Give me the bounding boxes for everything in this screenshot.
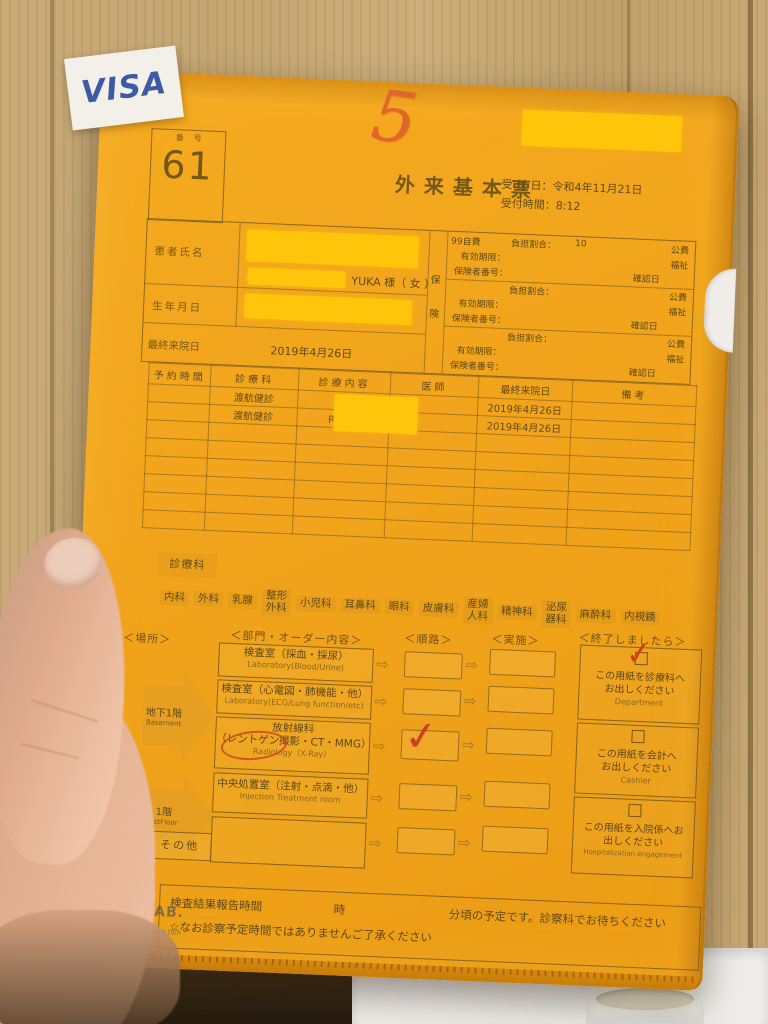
flow-arrow-icon: ⇨ [460,788,473,807]
flow-header-done: ＜実施＞ [491,631,540,649]
insurer-label: 保険者番号： [452,311,507,326]
department-chip: 内視鏡 [620,609,660,626]
palm-shadow [0,910,180,1024]
validity-label: 有効期限： [460,249,506,264]
department-chip: 小児科 [296,595,336,612]
patient-name-text: YUKA 様（ 女 ） [351,273,435,292]
flow-arrow-icon: ⇨ [464,692,477,711]
welfare: 福祉 [666,352,685,366]
welfare: 福祉 [668,305,687,319]
hand [0,520,190,1024]
burden-label: 負担割合： [511,236,557,251]
reception-date: 令和4年11月21日 [552,180,642,197]
red-checkmark: ✓ [624,636,652,673]
reception-date-label: 受 付 日： [501,178,552,193]
done-box [483,781,550,810]
department-chip: 精神科 [497,604,537,621]
confirm-date: 確認日 [631,318,659,332]
footer-rest: 分頃の予定です。診察科でお待ちください [448,907,666,930]
validity-label: 有効期限： [458,296,504,311]
flow-header-route: ＜順路＞ [404,630,453,648]
photo-stage: 番号 61 5 外来基本票 受 付 日：令和4年11月21日 受付時間：8:12 [0,0,768,1024]
insurer-label: 保険者番号： [454,264,509,279]
cup-opening [596,988,694,1010]
flow-arrow-icon: ⇨ [462,736,475,755]
flow-arrow-icon: ⇨ [370,789,383,808]
burden-label: 負担割合： [509,283,555,298]
department-chip: 泌尿 器科 [541,600,571,628]
dob-label: 生年月日 [152,298,203,315]
insurance-tab-char: 険 [429,305,440,320]
reception-info: 受 付 日：令和4年11月21日 受付時間：8:12 [500,175,642,219]
flow-arrow-icon: ⇨ [376,655,389,674]
order-box-empty [210,816,367,868]
department-chip: 耳鼻科 [340,597,380,614]
visa-label: VISA [79,65,169,111]
queue-number: 61 [160,143,214,189]
insurance-code: 99自費 [451,234,481,248]
last-visit-value: 2019年4月26日 [270,342,353,361]
insurer-label: 保険者番号： [450,358,505,373]
appointment-table: 予約時間 診療科 診療内容 医師 最終来院日 備考 渡航健診診察2019年4月2… [142,362,697,551]
burden-value: 10 [575,239,587,249]
hour-label: 時 [333,902,345,916]
public-expense: 公費 [669,290,688,304]
col-header: 予約時間 [148,363,211,387]
last-visit-label: 最終来院日 [147,337,200,354]
patient-info-box: 患者氏名 YUKA 様（ 女 ） 生年月日 最終来院日 2019年4月26日 保… [141,218,697,385]
department-chip-row: 内科 外科 乳腺 整形 外科 小児科 耳鼻科 眼科 皮膚科 産婦 人科 精神科 … [159,584,694,633]
flow-arrow-icon: ⇨ [374,692,387,711]
public-expense: 公費 [667,337,686,351]
checkbox-icon [628,804,642,818]
footer-note-box: 検査結果報告時間 時 分頃の予定です。診察科でお待ちください ☆なお診察予定時間… [157,884,701,971]
welfare: 福祉 [670,258,689,272]
insurance-block: 負担割合：公費 有効期限：福祉 保険者番号：確認日 [442,328,692,383]
burden-label: 負担割合： [507,330,553,345]
order-box-injection: 中央処置室（注射・点滴・他） Injection Treatment room [212,772,369,818]
done-box [487,686,554,715]
finish-box-cashier: この用紙を会計へ お出しください Cashier [574,722,699,798]
redaction-block [521,110,682,153]
validity-label: 有効期限： [456,343,502,358]
patient-name-label: 患者氏名 [154,243,205,260]
confirm-date: 確認日 [632,271,660,285]
order-box-lab-blood: 検査室（採血・採尿） Laboratory(Blood/Urine) [218,642,374,682]
department-chip: 産婦 人科 [463,597,493,625]
done-box [489,649,556,678]
flow-arrow-icon: ⇨ [465,656,478,675]
red-checkmark: ✓ [402,712,440,761]
divider [235,223,240,327]
department-chip: 外科 [194,591,224,608]
finish-box-hospitalization: この用紙を入院係へお 出しください Hospitalization engage… [571,796,696,878]
confirm-date: 確認日 [629,365,657,379]
handwritten-number: 5 [367,74,422,161]
flow-arrow-icon: ⇨ [368,834,381,853]
department-chip: 眼科 [384,599,414,616]
wood-groove [748,0,753,1024]
department-chip: 乳腺 [228,593,258,610]
done-box [482,826,549,855]
flow-arrow-icon: ⇨ [373,737,386,756]
department-chip: 皮膚科 [418,601,458,618]
public-expense: 公費 [671,243,690,257]
route-box [396,827,455,855]
route-box [398,783,457,811]
number-box: 番号 61 [148,128,227,223]
footer-line2: ☆なお診察予定時間ではありませんご了承ください [169,919,432,946]
done-box [486,728,553,757]
redaction-block [244,293,413,325]
redaction-block [246,229,419,268]
visa-sticker: VISA [64,45,184,130]
checkbox-icon [631,730,645,744]
reception-time: 8:12 [555,199,580,213]
reception-time-label: 受付時間： [500,197,555,212]
order-box-lab-ecg: 検査室（心電図・肺機能・他） Laboratory(ECG/Lung funct… [216,679,372,719]
department-chip: 整形 外科 [261,588,291,616]
route-box [404,651,463,679]
insurance-tab-char: 保 [430,271,441,286]
department-chip: 麻酔科 [575,607,615,624]
divider [424,231,431,373]
redaction-block [333,394,418,434]
redaction-block [247,267,346,288]
flow-arrow-icon: ⇨ [458,834,471,853]
